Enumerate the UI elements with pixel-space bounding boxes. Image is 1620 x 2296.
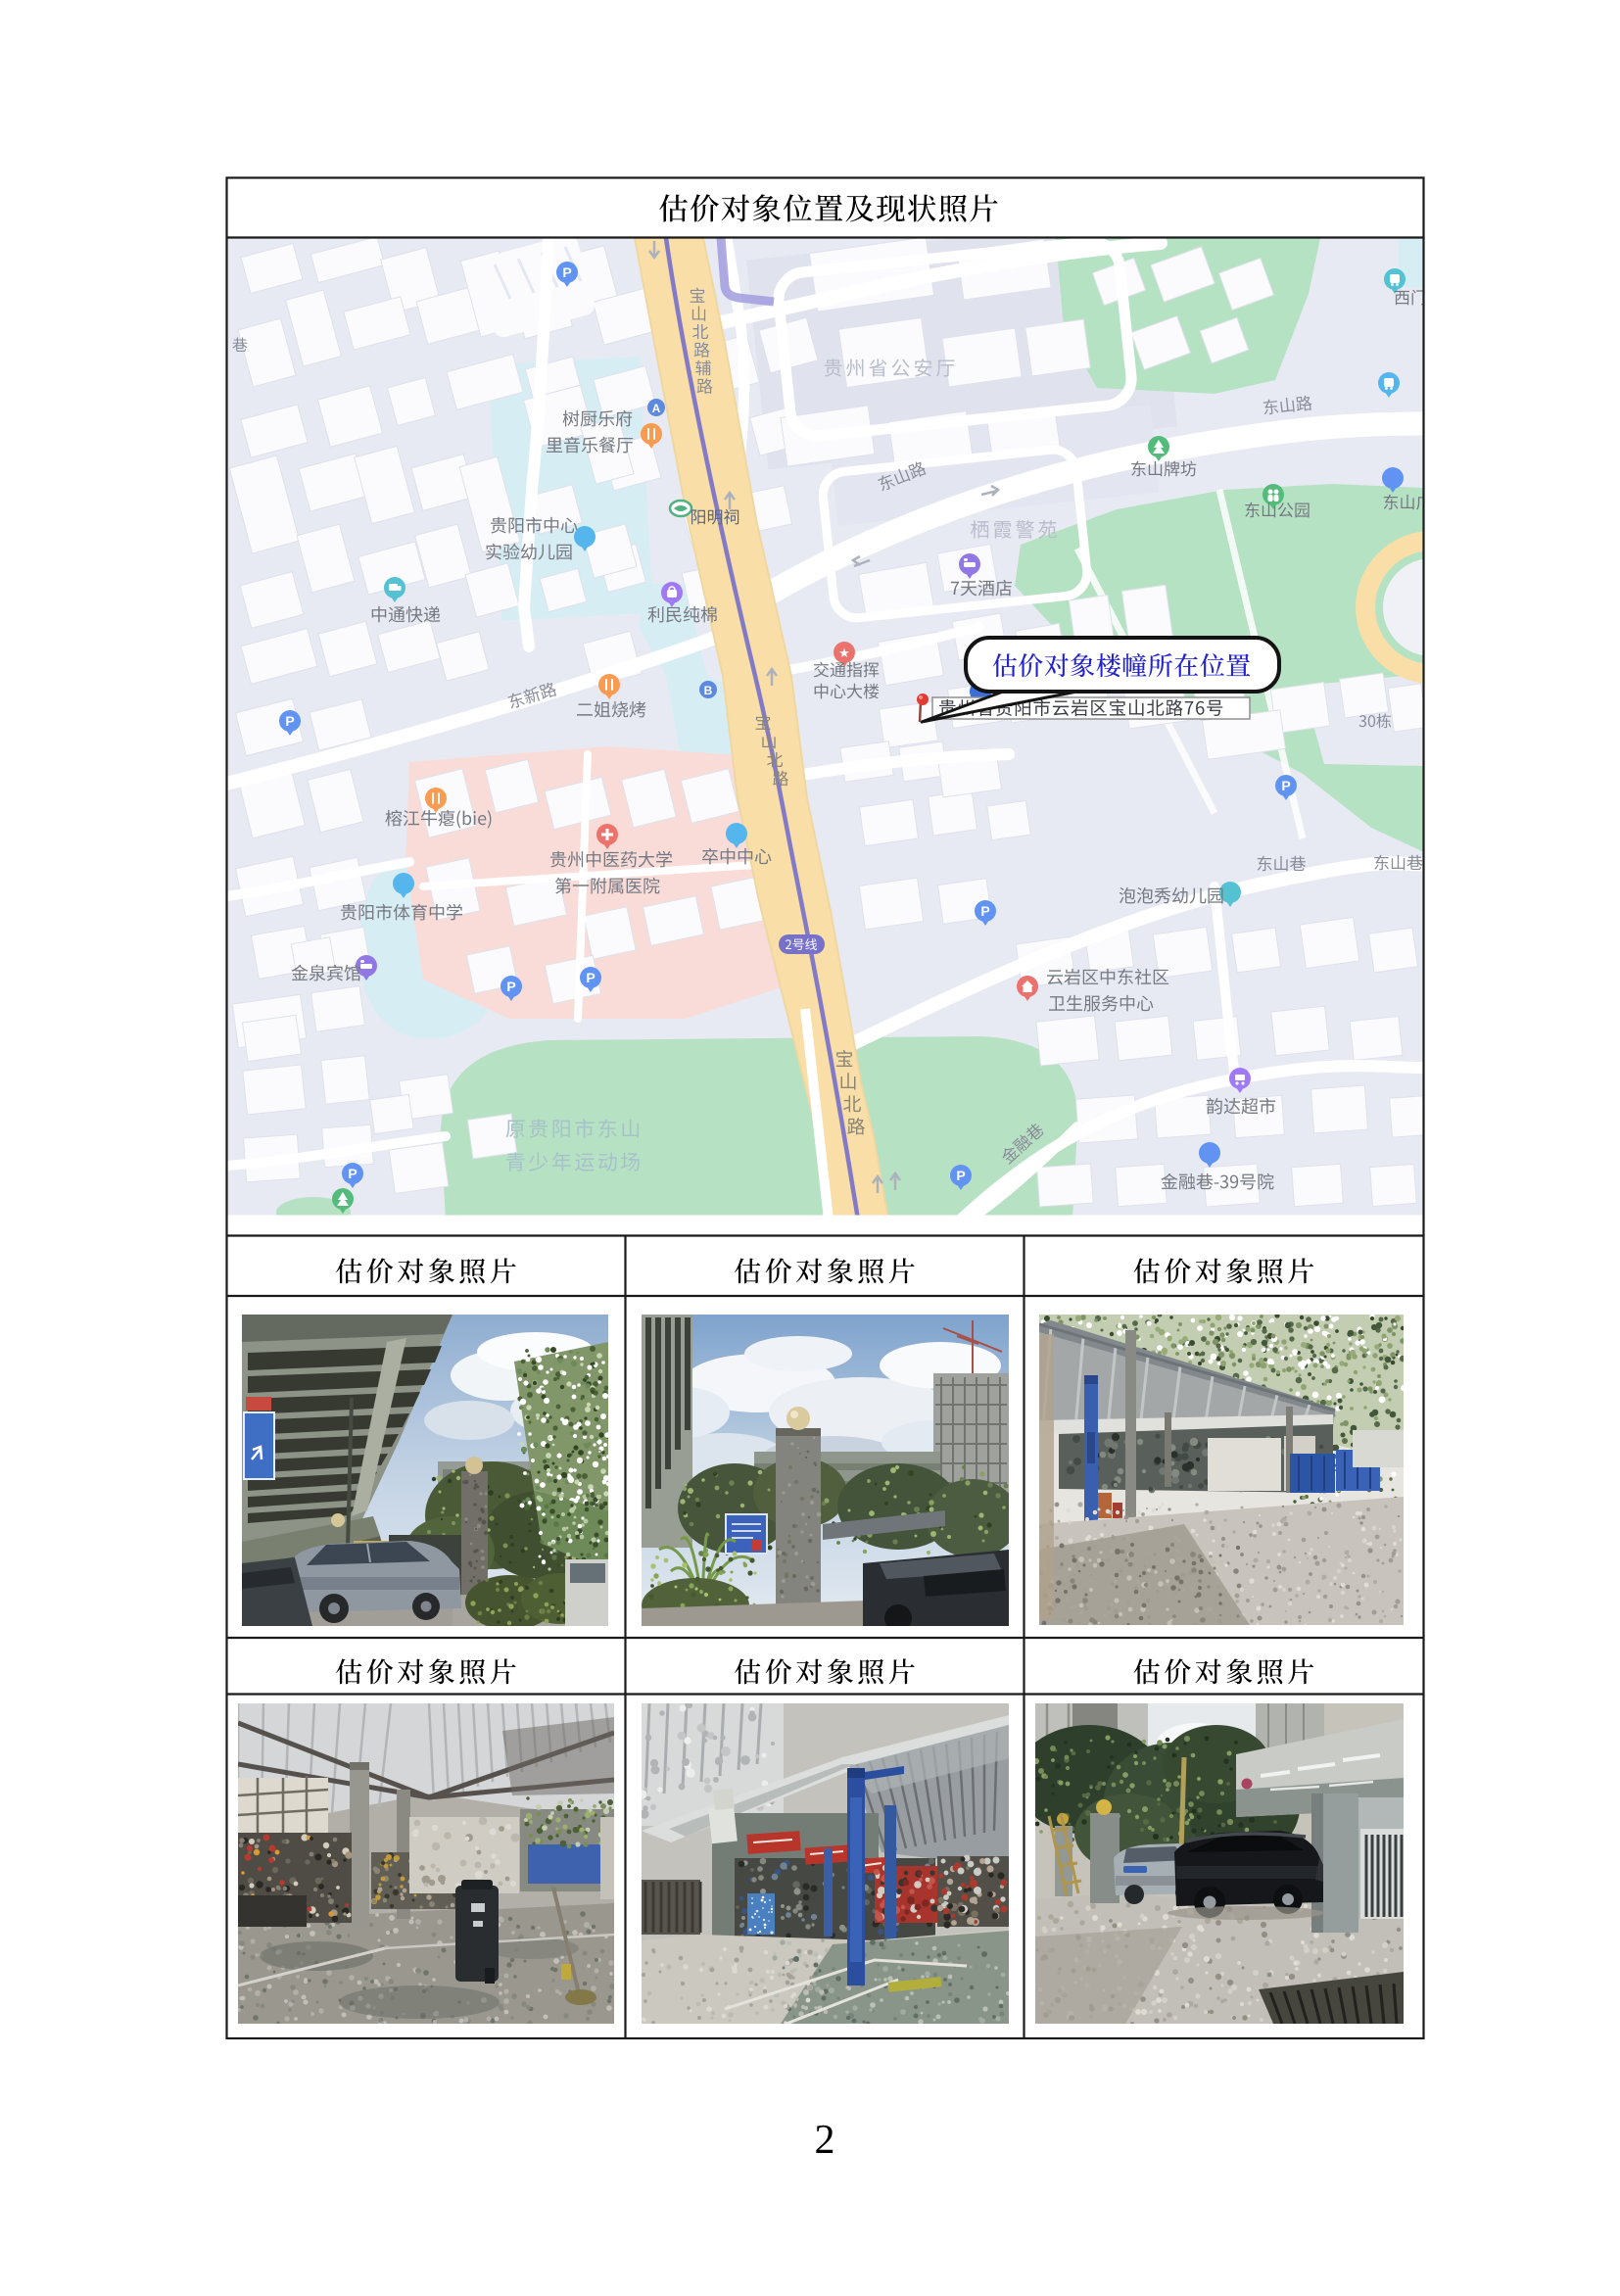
svg-text:2: 2 bbox=[815, 2118, 835, 2163]
